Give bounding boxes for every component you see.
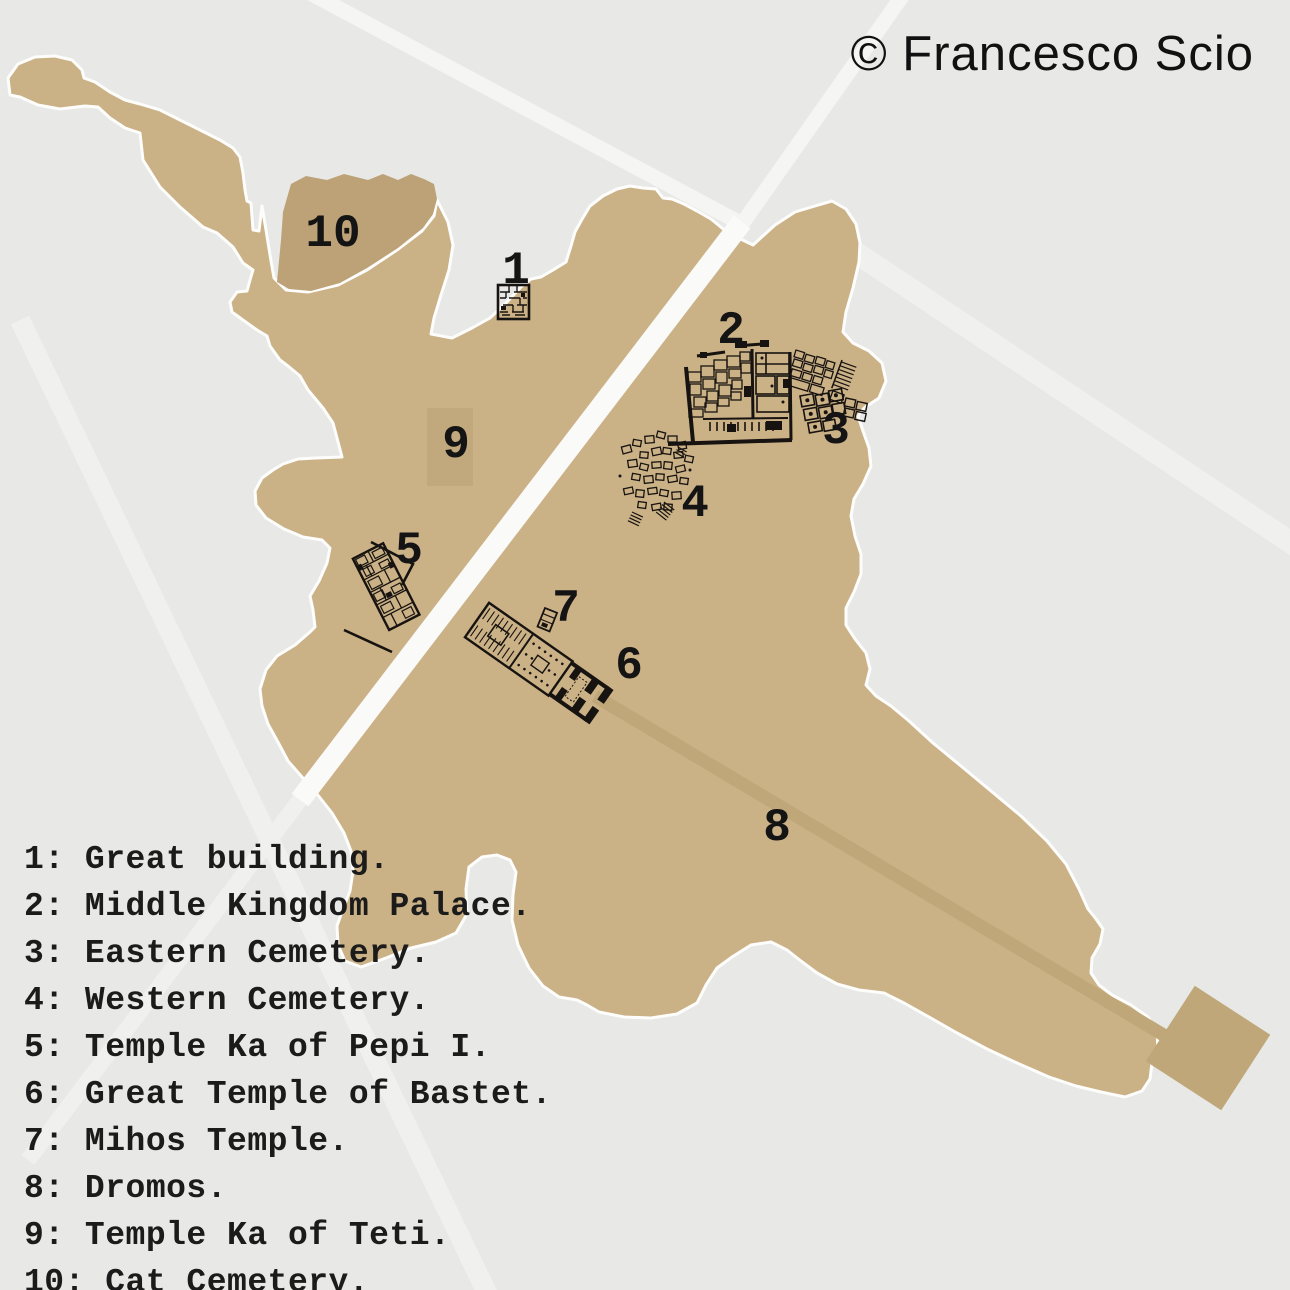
label-8: 8 xyxy=(763,802,791,854)
legend-item-9: 9: Temple Ka of Teti. xyxy=(24,1212,552,1259)
legend-item-1: 1: Great building. xyxy=(24,836,552,883)
label-6: 6 xyxy=(615,640,643,692)
legend: 1: Great building. 2: Middle Kingdom Pal… xyxy=(24,836,552,1290)
legend-item-5: 5: Temple Ka of Pepi I. xyxy=(24,1024,552,1071)
copyright: © Francesco Scio xyxy=(851,26,1254,82)
legend-item-2: 2: Middle Kingdom Palace. xyxy=(24,883,552,930)
label-3: 3 xyxy=(822,405,850,457)
legend-item-10: 10: Cat Cemetery. xyxy=(24,1259,552,1290)
label-2: 2 xyxy=(717,305,745,357)
label-4: 4 xyxy=(681,478,709,530)
legend-item-7: 7: Mihos Temple. xyxy=(24,1118,552,1165)
map-canvas: 1 2 3 4 5 6 7 8 9 10 © Francesco Scio 1:… xyxy=(0,0,1290,1290)
label-1: 1 xyxy=(502,245,530,297)
label-5: 5 xyxy=(395,525,423,577)
label-10: 10 xyxy=(305,208,360,260)
legend-item-4: 4: Western Cemetery. xyxy=(24,977,552,1024)
label-7: 7 xyxy=(552,583,580,635)
legend-item-8: 8: Dromos. xyxy=(24,1165,552,1212)
label-9: 9 xyxy=(442,419,470,471)
legend-item-3: 3: Eastern Cemetery. xyxy=(24,930,552,977)
legend-item-6: 6: Great Temple of Bastet. xyxy=(24,1071,552,1118)
